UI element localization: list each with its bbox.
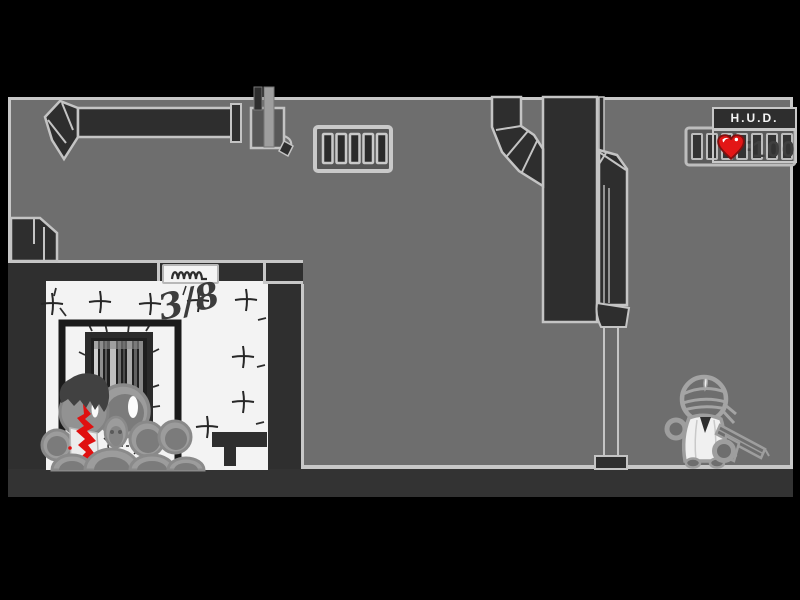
rear-hand [667,420,685,438]
foot [686,459,700,468]
scene-art [0,0,800,600]
wall-duct-elbow [11,218,57,261]
agent-character[interactable] [667,377,769,468]
central-column [492,97,629,469]
hud-health-value: 100 [752,138,796,161]
hud-title-bar: H.U.D. [712,107,797,130]
cell-interior [41,286,267,470]
trigger-hand [715,442,734,461]
vent-grate-icon [315,127,391,171]
air-duct [45,87,293,159]
bench [212,432,267,466]
hud-health-panel: : 100 [712,129,797,163]
game-stage[interactable]: 3/8 H.U.D. : 100 [0,0,800,600]
heart-icon [716,133,746,161]
